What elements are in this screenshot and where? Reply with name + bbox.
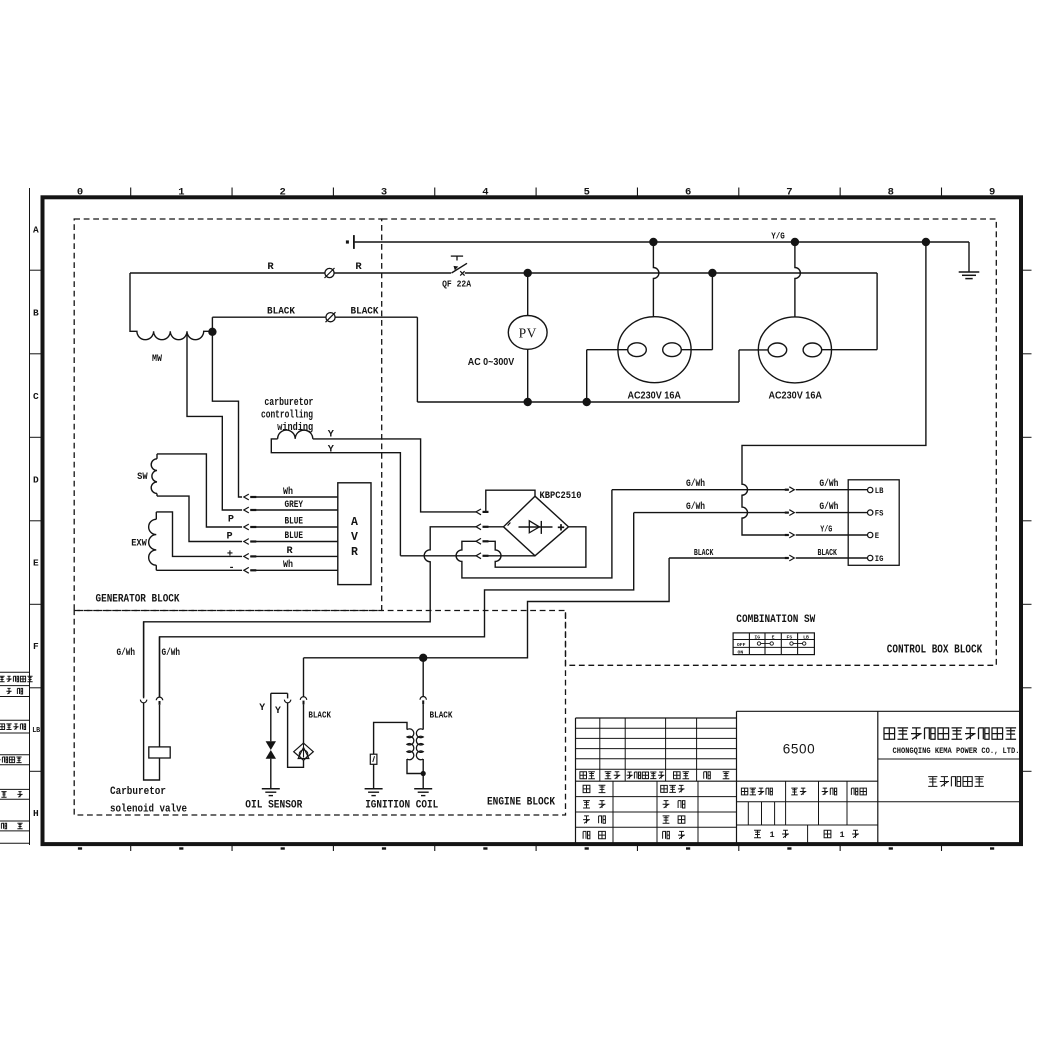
svg-text:CONTROL BOX BLOCK: CONTROL BOX BLOCK — [887, 642, 983, 656]
svg-text:E: E — [875, 531, 879, 541]
svg-text:carburetor: carburetor — [264, 397, 313, 409]
svg-text:PV: PV — [519, 325, 537, 340]
svg-text:BLACK: BLACK — [267, 306, 296, 318]
svg-text:G/Wh: G/Wh — [686, 501, 705, 513]
svg-text:5: 5 — [584, 186, 590, 198]
svg-text:V: V — [351, 531, 358, 544]
svg-text:BLACK: BLACK — [351, 306, 380, 318]
svg-text:Y/G: Y/G — [820, 524, 832, 534]
svg-text:GREY: GREY — [285, 500, 304, 511]
svg-text:1: 1 — [839, 830, 844, 840]
svg-text:IG: IG — [754, 634, 760, 640]
svg-text:R: R — [355, 261, 362, 273]
svg-text:KBPC2510: KBPC2510 — [540, 490, 582, 502]
svg-text:QF 22A: QF 22A — [442, 278, 471, 289]
svg-text:2: 2 — [280, 186, 286, 198]
svg-text:LB: LB — [803, 634, 809, 640]
svg-text:OFF: OFF — [737, 642, 746, 648]
svg-text:1: 1 — [178, 186, 184, 198]
svg-text:OIL SENSOR: OIL SENSOR — [245, 800, 302, 812]
svg-text:solenoid valve: solenoid valve — [110, 804, 187, 816]
svg-text:1: 1 — [769, 830, 774, 840]
svg-text:MW: MW — [152, 353, 163, 365]
svg-text:BLUE: BLUE — [285, 531, 304, 542]
svg-text:IG: IG — [875, 554, 884, 564]
svg-text:FS: FS — [787, 634, 793, 640]
svg-text:BLACK: BLACK — [430, 709, 453, 720]
svg-text:R: R — [267, 261, 274, 273]
svg-text:CHONGQING KEMA POWER CO., LTD.: CHONGQING KEMA POWER CO., LTD. — [893, 746, 1020, 756]
svg-text:G/Wh: G/Wh — [686, 478, 705, 490]
svg-text:BLUE: BLUE — [285, 517, 304, 528]
svg-text:BLACK: BLACK — [694, 548, 714, 558]
svg-text:4: 4 — [482, 186, 488, 198]
svg-text:ON: ON — [738, 650, 744, 656]
svg-text:AC230V 16A: AC230V 16A — [768, 390, 822, 401]
svg-text:IGNITION COIL: IGNITION COIL — [365, 800, 438, 812]
svg-text:FS: FS — [875, 509, 884, 519]
svg-text:SW: SW — [137, 472, 148, 483]
svg-text:BLACK: BLACK — [817, 548, 837, 558]
svg-text:EXW: EXW — [131, 538, 147, 549]
svg-text:Y/G: Y/G — [771, 231, 785, 242]
svg-text:LB: LB — [875, 486, 884, 496]
svg-text:Wh: Wh — [283, 559, 293, 571]
svg-text:E: E — [772, 634, 775, 640]
svg-text:-: - — [228, 563, 234, 574]
svg-text:G/Wh: G/Wh — [819, 501, 838, 513]
svg-text:6: 6 — [685, 186, 691, 198]
svg-text:0: 0 — [77, 186, 83, 198]
svg-text:D: D — [33, 474, 39, 485]
svg-text:6500: 6500 — [783, 742, 815, 757]
svg-text:H: H — [33, 808, 39, 819]
svg-text:3: 3 — [381, 186, 387, 198]
svg-text:C: C — [33, 391, 39, 402]
svg-text:P: P — [226, 531, 232, 542]
svg-text:A: A — [33, 224, 39, 235]
svg-text:AC 0~300V: AC 0~300V — [468, 357, 515, 368]
svg-text:Y: Y — [275, 705, 281, 716]
svg-text:R: R — [351, 546, 358, 559]
svg-text:R: R — [286, 546, 293, 557]
svg-text:ENGINE BLOCK: ENGINE BLOCK — [487, 796, 555, 808]
svg-text:P: P — [228, 515, 234, 526]
svg-text:B: B — [33, 307, 39, 318]
svg-text:7: 7 — [786, 186, 792, 198]
svg-text:Wh: Wh — [283, 486, 293, 498]
svg-text:winding: winding — [277, 422, 313, 434]
svg-text:E: E — [33, 558, 39, 569]
svg-text:A: A — [351, 516, 358, 529]
svg-text:8: 8 — [888, 186, 894, 198]
svg-text:G/Wh: G/Wh — [162, 647, 181, 658]
svg-text:GENERATOR BLOCK: GENERATOR BLOCK — [96, 594, 180, 606]
svg-text:+: + — [227, 550, 233, 561]
svg-text:AC230V 16A: AC230V 16A — [627, 390, 681, 401]
svg-text:COMBINATION SW: COMBINATION SW — [736, 614, 815, 626]
svg-text:LB: LB — [32, 727, 41, 735]
svg-text:Y: Y — [328, 445, 335, 456]
svg-text:Y: Y — [259, 702, 265, 713]
svg-text:G/Wh: G/Wh — [117, 647, 136, 658]
svg-text:Y: Y — [328, 430, 335, 441]
svg-text:controlling: controlling — [261, 410, 313, 422]
svg-text:F: F — [33, 641, 39, 652]
svg-text:Carburetor: Carburetor — [110, 786, 166, 798]
svg-text:9: 9 — [989, 186, 995, 198]
svg-text:G/Wh: G/Wh — [819, 478, 838, 490]
svg-text:BLACK: BLACK — [308, 709, 331, 720]
